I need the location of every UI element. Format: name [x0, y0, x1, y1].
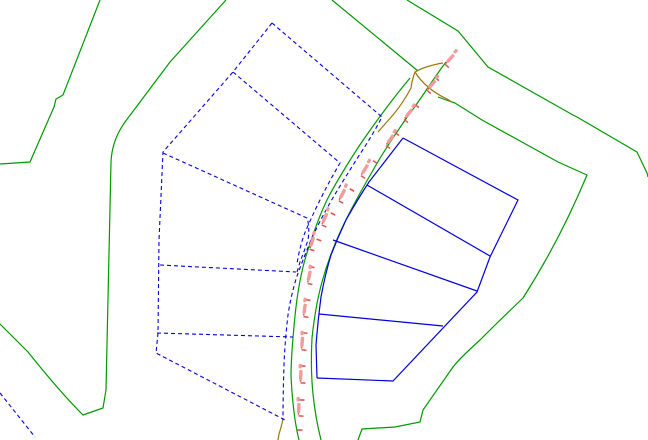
station-label-text-blob	[300, 331, 304, 336]
station-label-tick	[304, 317, 309, 318]
station-label-dot	[303, 314, 305, 316]
track-centerline-line	[378, 63, 443, 132]
parcels-proposed-dashed-line	[272, 23, 382, 420]
station-label	[337, 183, 353, 203]
station-label-text-blob	[303, 297, 307, 302]
parcels-proposed-dashed-line	[160, 265, 296, 272]
station-label-text-blob	[302, 304, 307, 314]
drawing-canvas[interactable]	[0, 0, 648, 440]
parcels-solid-line	[333, 240, 477, 291]
station-label-tick	[310, 249, 315, 251]
road-edges-line	[291, 78, 410, 440]
parcels-proposed-dashed-line	[156, 23, 285, 420]
parcels-proposed-dashed-line	[0, 393, 35, 437]
station-label-tick	[445, 64, 449, 67]
station-label-dot	[301, 347, 303, 349]
station-label-dot	[321, 222, 323, 224]
station-label-text-blob	[299, 364, 302, 369]
parcels-solid-line	[319, 314, 443, 326]
parcels-solid-line	[367, 185, 490, 256]
parcels-proposed-dashed-line	[233, 72, 340, 264]
station-tick	[350, 189, 354, 192]
cad-viewport	[0, 0, 648, 440]
station-label-text-blob	[297, 403, 301, 413]
station-label-text-blob	[300, 337, 304, 347]
station-label-dot	[307, 281, 309, 283]
station-label-text-blob	[299, 370, 303, 380]
parcels-proposed-dashed-line	[163, 153, 309, 272]
station-label-text-blob	[308, 264, 312, 269]
survey-boundaries-line	[332, 0, 418, 71]
station-label-tick	[339, 201, 343, 203]
station-tick	[373, 161, 377, 164]
track-centerline-line	[278, 419, 283, 440]
station-label-text-blob	[307, 270, 312, 280]
layer-station-labels	[296, 49, 462, 417]
station-label-text-blob	[361, 164, 369, 174]
survey-boundaries-line	[358, 97, 587, 440]
station-label	[305, 264, 316, 284]
station-label	[319, 207, 334, 227]
station-label-text-blob	[339, 189, 347, 199]
station-label	[384, 129, 401, 149]
station-label	[425, 74, 443, 93]
station-tick	[331, 213, 335, 215]
survey-boundaries-line	[0, 0, 226, 415]
station-label-text-blob	[343, 183, 348, 188]
station-label-text-blob	[297, 397, 300, 402]
station-tick	[317, 239, 322, 241]
layer-parcels-solid	[316, 138, 518, 381]
station-label-tick	[322, 225, 327, 227]
survey-boundaries-line	[407, 0, 648, 177]
station-label-text-blob	[411, 103, 416, 109]
station-label-dot	[298, 413, 300, 415]
station-label	[443, 49, 461, 68]
layer-station-ticks	[298, 77, 439, 430]
station-label-text-blob	[325, 207, 330, 212]
layer-parcels-proposed-dashed	[0, 23, 382, 437]
station-label-dot	[300, 380, 302, 382]
survey-boundaries-line	[0, 0, 100, 164]
station-label-text-blob	[434, 74, 439, 80]
station-label-text-blob	[446, 54, 455, 64]
station-label-tick	[308, 283, 313, 284]
station-label-tick	[427, 90, 431, 93]
station-label-text-blob	[405, 108, 414, 118]
station-label-text-blob	[453, 49, 458, 54]
station-label-text-blob	[366, 158, 371, 164]
station-label-tick	[361, 176, 365, 179]
parcels-proposed-dashed-line	[157, 333, 293, 337]
